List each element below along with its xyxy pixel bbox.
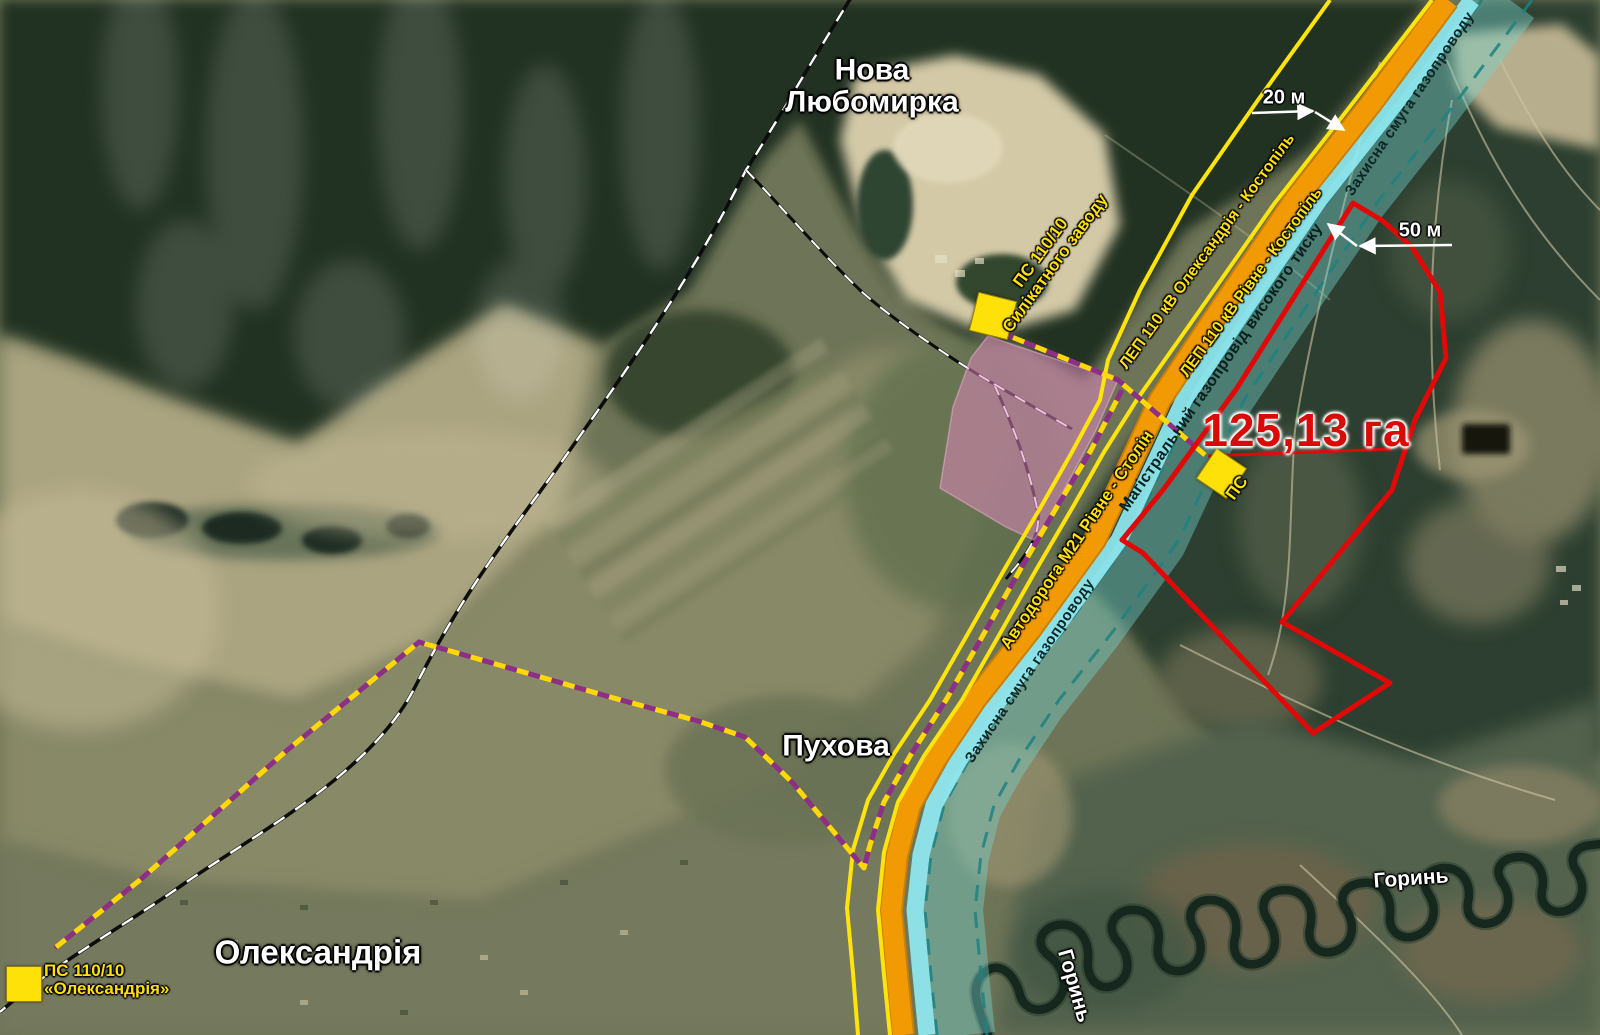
town-label-pukhova: Пухова — [782, 730, 890, 762]
pond — [202, 512, 282, 544]
satellite-map-layer — [0, 0, 1600, 1035]
dimension-label-20m: 20 м — [1263, 88, 1306, 109]
town-label-line: Любомирка — [785, 86, 958, 118]
plot-area-label: 125,13 га — [1202, 406, 1409, 454]
town-label-line: Нова — [785, 55, 958, 87]
dimension-label-50m: 50 м — [1399, 221, 1442, 242]
town-label-oleksandriia: Олександрія — [215, 936, 422, 971]
map-canvas[interactable]: Нова Любомирка Пухова Олександрія Горинь… — [0, 0, 1600, 1035]
dim-50m-arrow — [1360, 245, 1452, 246]
town-label-nova-liubomyrka: Нова Любомирка — [785, 55, 958, 118]
substation-label-line: «Олександрія» — [44, 980, 169, 998]
substation-marker-oleksandriia — [6, 966, 42, 1002]
substation-label-oleksandriia: ПС 110/10 «Олександрія» — [44, 962, 169, 998]
substation-label-line: ПС 110/10 — [44, 962, 169, 980]
